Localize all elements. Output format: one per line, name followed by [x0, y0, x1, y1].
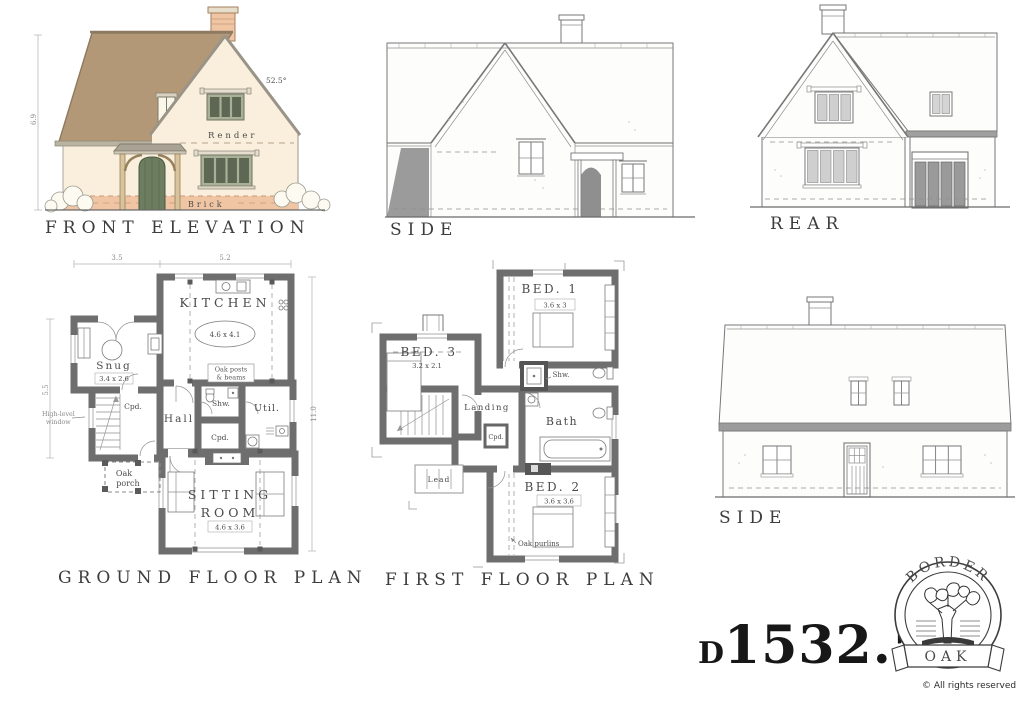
ground-floor-drawing: KITCHEN 4.6 x 4.1 Oak posts & beams Snug…	[40, 250, 350, 565]
side-bottom-title: SIDE	[719, 508, 787, 528]
walls	[383, 273, 615, 559]
dim-5-5: 5.5	[42, 384, 50, 395]
roof-window-right	[892, 377, 911, 405]
brick-label: Brick	[188, 200, 225, 209]
rear-elevation-drawing	[745, 0, 1015, 212]
logo-banner-text: OAK	[924, 649, 971, 665]
bath-label: Bath	[546, 415, 578, 428]
first-floor-drawing: BED. 1 3.6 x 3 BED. 3 3.2 x 2.1 Landing …	[365, 255, 665, 570]
roof-window-left	[849, 377, 868, 405]
first-floor-title: FIRST FLOOR PLAN	[385, 570, 660, 590]
lower-window	[797, 142, 867, 188]
render-label: Render	[208, 131, 257, 141]
dim-3-5: 3.5	[111, 254, 122, 262]
oak-purlins-label: Oak purlins	[518, 540, 560, 548]
sitting-size-label: 4.6 x 3.6	[215, 524, 245, 532]
chimney	[559, 15, 584, 43]
side-elevation-top-panel: SIDE	[385, 10, 695, 245]
landing-label: Landing	[464, 403, 510, 413]
chimney	[820, 5, 846, 34]
french-doors	[912, 152, 968, 208]
border-oak-logo: BORDER	[878, 553, 1018, 685]
stack-flue	[531, 465, 538, 472]
high-level-label1: High-level	[42, 411, 75, 418]
hall-stair-block	[92, 390, 160, 458]
cpd-stairs-label: Cpd.	[124, 402, 142, 411]
shw-label: Shw.	[553, 371, 570, 379]
chimney	[807, 297, 833, 327]
lower-window	[194, 150, 259, 189]
bed3-size-label: 3.2 x 2.1	[412, 362, 442, 370]
gable-window	[516, 139, 546, 176]
ground-floor-title: GROUND FLOOR PLAN	[58, 568, 368, 588]
porch-label2: porch	[116, 479, 139, 488]
small-window	[930, 92, 952, 116]
window-left	[761, 446, 793, 477]
front-elevation-drawing: 52.5° Render Brick	[30, 5, 335, 217]
roof-plane	[719, 325, 1011, 425]
sitting-label2: ROOM	[201, 505, 260, 520]
upper-window	[200, 88, 251, 120]
side-top-title: SIDE	[390, 220, 458, 240]
rear-title: REAR	[770, 214, 844, 234]
oak-posts-label1: Oak posts	[215, 366, 248, 374]
oak-posts-label2: & beams	[216, 374, 245, 382]
bed1-label: BED. 1	[521, 282, 578, 296]
oak-porch	[114, 144, 186, 210]
kitchen-size-label: 4.6 x 4.1	[210, 331, 241, 339]
hall-label: Hall	[164, 413, 194, 425]
bed2-label: BED. 2	[524, 480, 581, 494]
dim-5-2: 5.2	[219, 254, 230, 262]
bed1-size-label: 3.6 x 3	[543, 302, 566, 310]
cpd-label: Cpd.	[488, 433, 503, 441]
roof-pitch-label: 52.5°	[266, 76, 287, 85]
first-floor-panel: BED. 1 3.6 x 3 BED. 3 3.2 x 2.1 Landing …	[365, 255, 665, 595]
brand-block: D1532.5A BORDER	[690, 553, 1024, 701]
logo-banner: OAK	[892, 645, 1004, 671]
side-elevation-top-drawing	[385, 10, 695, 220]
side-elevation-bottom-drawing	[715, 295, 1015, 507]
drawing-number-prefix: D	[698, 636, 724, 671]
kitchen-label: KITCHEN	[179, 295, 270, 310]
bed2-size-label: 3.6 x 3.6	[544, 498, 574, 506]
snug-size-label: 3.4 x 2.6	[99, 375, 129, 383]
side-elevation-bottom-panel: SIDE	[715, 295, 1015, 535]
rights-reserved: © All rights reserved	[922, 681, 1016, 691]
snug-label: Snug	[96, 360, 131, 372]
window-right	[921, 446, 963, 477]
front-elevation-title: FRONT ELEVATION	[45, 218, 311, 238]
dim-11-0: 11.0	[310, 406, 318, 422]
front-elevation-panel: 52.5° Render Brick	[30, 5, 335, 250]
shower-cubicle	[522, 363, 546, 389]
util-label: Util.	[254, 403, 280, 414]
upper-window	[807, 86, 861, 123]
porch-label1: Oak	[116, 469, 132, 478]
cpd-lobby-label: Cpd.	[211, 433, 229, 442]
side-window	[619, 161, 647, 194]
shw-label: Shw.	[212, 399, 230, 408]
bed3-label: BED. 3	[400, 345, 457, 359]
eaves-band	[906, 131, 997, 137]
eaves-band	[719, 423, 1011, 431]
door	[844, 443, 870, 497]
height-dimension: 6.9	[30, 35, 42, 210]
drawing-sheet: 52.5° Render Brick	[0, 0, 1024, 701]
height-dim-label: 6.9	[30, 114, 38, 125]
lead-label: Lead	[428, 475, 451, 484]
sitting-label1: SITTING	[188, 487, 272, 502]
ground-floor-panel: KITCHEN 4.6 x 4.1 Oak posts & beams Snug…	[40, 250, 350, 590]
rear-elevation-panel: REAR	[745, 0, 1015, 240]
